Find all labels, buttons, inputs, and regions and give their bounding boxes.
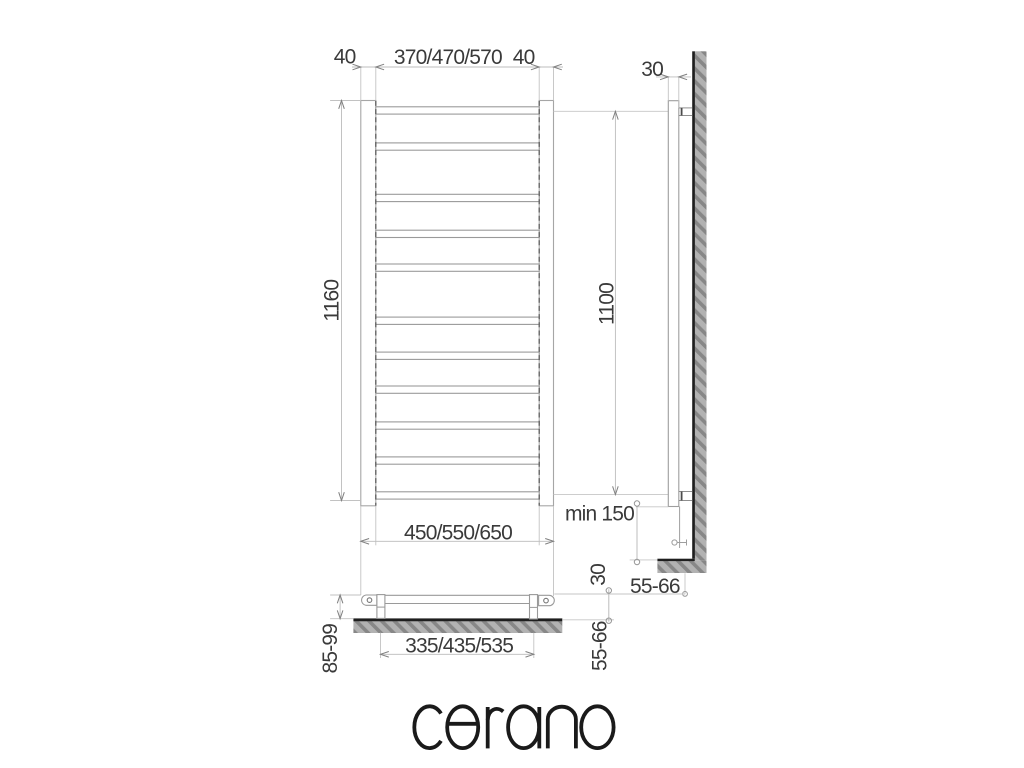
svg-text:30: 30 — [587, 564, 610, 586]
svg-text:55-66: 55-66 — [589, 621, 612, 671]
svg-text:85-99: 85-99 — [319, 624, 342, 674]
svg-text:55-66: 55-66 — [630, 575, 680, 598]
svg-text:30: 30 — [641, 58, 663, 81]
svg-text:min 150: min 150 — [565, 503, 634, 526]
svg-text:335/435/535: 335/435/535 — [405, 635, 513, 658]
svg-text:450/550/650: 450/550/650 — [404, 522, 512, 545]
svg-text:1160: 1160 — [321, 280, 344, 322]
svg-text:40: 40 — [334, 46, 356, 69]
svg-text:1100: 1100 — [596, 283, 619, 325]
svg-text:370/470/570: 370/470/570 — [394, 46, 502, 69]
svg-text:40: 40 — [513, 46, 535, 69]
